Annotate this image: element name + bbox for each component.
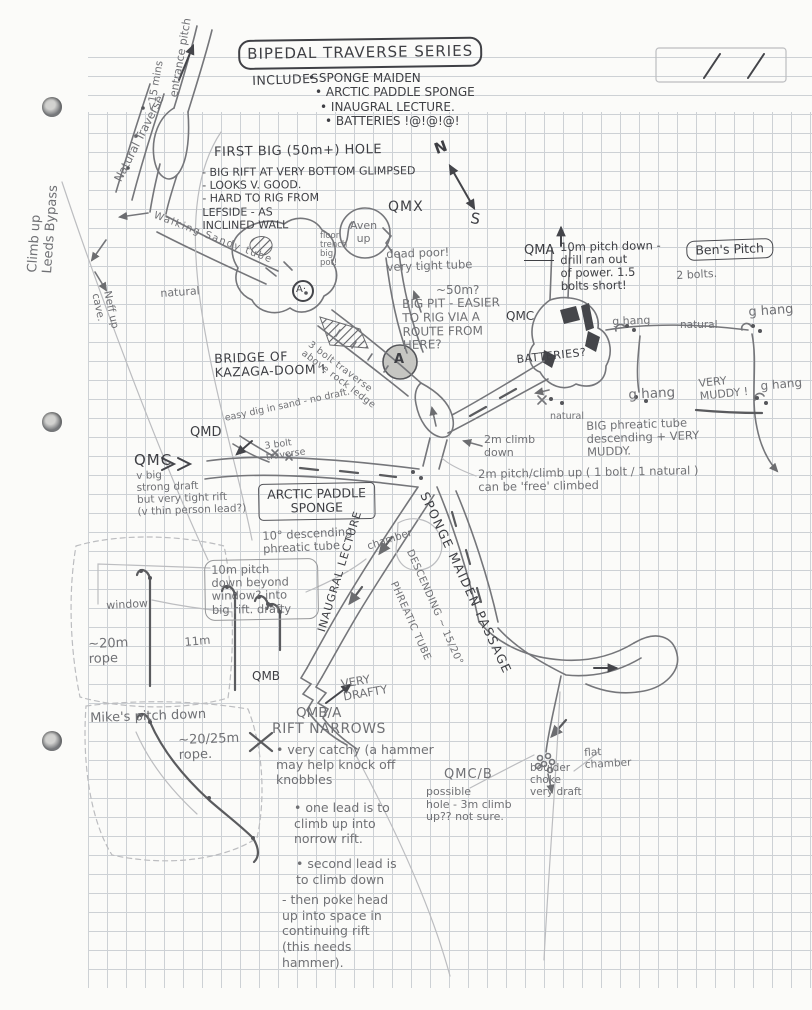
- includes-item: ARCTIC PADDLE SPONGE: [315, 86, 475, 100]
- floor-trench-label: floor trench big pot!: [320, 232, 347, 268]
- eleven-m-label: 11m: [184, 634, 211, 649]
- rift-note-1: • very catchy (a hammer may help knock o…: [276, 742, 434, 787]
- dead-poor-label: dead poor! very tight tube: [386, 245, 473, 274]
- natural-label: natural: [680, 320, 718, 332]
- boulder-choke-label: boulder choke very draft: [530, 762, 582, 798]
- big-phreatic-note: BIG phreatic tube descending + VERY MUDD…: [586, 416, 700, 460]
- qmc-b-note: possible hole - 3m climb up?? not sure.: [426, 786, 512, 824]
- first-hole-title: FIRST BIG (50m+) HOLE: [214, 143, 382, 161]
- pitch-2m-note: 2m pitch/climb up ( 1 bolt / 1 natural )…: [478, 464, 699, 494]
- g-hang-label: g hang: [628, 386, 676, 404]
- big-pit-note: BIG PIT - EASIER TO RIG VIA A ROUTE FROM…: [402, 296, 501, 353]
- g-hang-label: g hang: [612, 315, 651, 329]
- includes-item: INAUGRAL LECTURE.: [320, 101, 455, 115]
- climb-2m-label: 2m climb down: [484, 434, 535, 459]
- includes-item: BATTERIES !@!@!@!: [325, 115, 460, 129]
- flat-chamber-label: flat chamber: [584, 746, 632, 772]
- rift-narrows-label: RIFT NARROWS: [272, 722, 386, 738]
- rope-20m-label: ~20m rope: [88, 637, 129, 668]
- scanned-cave-survey-page: BIPEDAL TRAVERSE SERIES INCLUDES SPONGE …: [0, 0, 812, 1010]
- bens-bolts-label: 2 bolts.: [676, 268, 717, 283]
- window-label: window: [106, 598, 148, 613]
- qmx-label: QMX: [388, 200, 424, 216]
- qmb-label: QMB: [252, 670, 280, 684]
- bridge-of-kazaga-doom-label: BRIDGE OF KAZAGA-DOOM !: [214, 348, 326, 380]
- cave-survey-drawing: [0, 0, 812, 1010]
- natural-label: natural: [550, 412, 584, 423]
- aven-up-label: Aven up: [350, 220, 377, 245]
- first-hole-notes: - BIG RIFT AT VERY BOTTOM GLIMPSED - LOO…: [202, 164, 416, 232]
- very-muddy-label: VERY MUDDY !: [698, 373, 749, 403]
- qmc-b-label: QMC/B: [444, 768, 493, 783]
- compass-arrow: [450, 166, 474, 208]
- pitch-10m-note: 10m pitch down beyond window? into big r…: [204, 558, 319, 621]
- page-title: BIPEDAL TRAVERSE SERIES: [238, 37, 482, 70]
- qma-label: QMA: [524, 244, 554, 261]
- survey-station-a-star: A·: [296, 284, 306, 295]
- g-hang-label: g hang: [748, 303, 794, 321]
- rift-note-2: • one lead is to climb up into norrow ri…: [294, 800, 390, 847]
- survey-station-a: A: [394, 353, 404, 368]
- mikes-rope-label: ~20/25m rope.: [178, 732, 240, 764]
- qmc-right-label: QMC: [506, 310, 534, 324]
- qma-note: 10m pitch down - drill ran out of power.…: [560, 239, 661, 292]
- rift-note-3: • second lead is to climb down: [296, 856, 397, 887]
- rift-note-4: - then poke head up into space in contin…: [282, 892, 388, 970]
- qmd-label: QMD: [190, 426, 221, 441]
- qmc-left-note: v big strong draft but very tight rift (…: [136, 466, 246, 518]
- leeds-bypass-label: Climb up Leeds Bypass: [26, 184, 62, 274]
- includes-item: SPONGE MAIDEN: [308, 72, 421, 86]
- qmb-a-label: QMB/A: [296, 706, 341, 721]
- sponge-maiden-passage-drawing: [352, 487, 678, 976]
- qmc-left-label: QMC: [134, 452, 172, 469]
- bens-pitch-label: Ben's Pitch: [686, 238, 773, 261]
